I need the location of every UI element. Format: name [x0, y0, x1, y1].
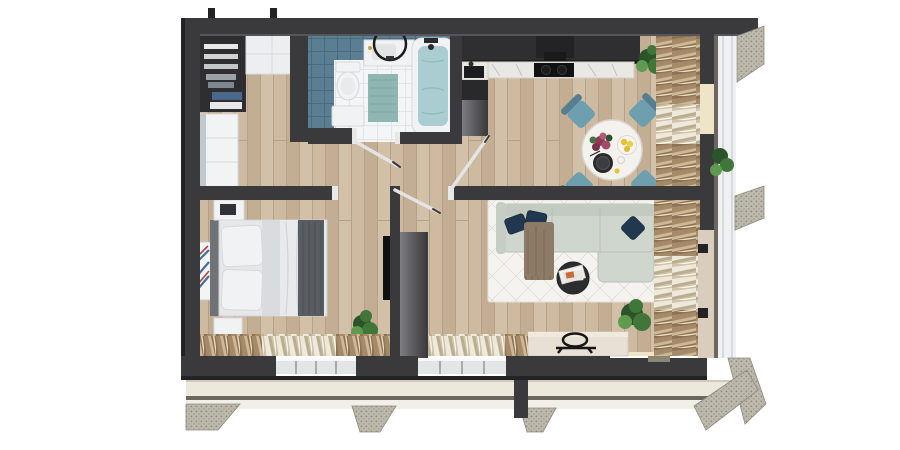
window-handle [698, 308, 708, 318]
living-curtain-cream [654, 256, 700, 310]
glass-frame [418, 358, 506, 361]
partition-cabinet [400, 232, 428, 360]
wardrobe-shelf [204, 44, 238, 49]
appliance-front [462, 100, 488, 136]
window-frame [714, 36, 718, 358]
floor-plan-canvas [0, 0, 900, 450]
door-frame [395, 132, 400, 144]
sofa-back-cushions [502, 204, 654, 216]
small-cup [618, 157, 625, 164]
bathroom-bottom-wall [308, 128, 352, 144]
balcony-floor-edge [186, 380, 732, 382]
glass-line [731, 36, 733, 358]
burner [542, 66, 551, 75]
floor-plan-render [0, 0, 900, 450]
kitchen-curtain-cream [656, 104, 704, 144]
glass-facade [718, 36, 736, 358]
wall-post [514, 356, 528, 418]
nightstand [214, 318, 242, 336]
toilet-tank [336, 62, 360, 72]
kitchen-curtain-brown [656, 144, 704, 186]
bedroom-right-wall [390, 186, 400, 360]
bedroom-curtain-brown [200, 334, 262, 356]
glass-line [722, 36, 724, 358]
lemon [621, 139, 627, 145]
sink-faucet [469, 62, 474, 67]
lemon [624, 146, 630, 152]
sink-basin [464, 66, 484, 78]
living-curtain-cream [428, 334, 505, 356]
entry-bathroom-wall [290, 34, 308, 142]
tub-drain [428, 44, 434, 50]
bathroom-bottom-wall [400, 132, 462, 144]
balcony-railing [186, 396, 734, 400]
balcony-outer-strip [186, 400, 734, 409]
wall-stub [208, 8, 215, 18]
bathroom [308, 28, 454, 142]
right-wall [700, 134, 714, 230]
bedroom-curtain-cream [262, 334, 336, 356]
burner [558, 66, 567, 75]
wall-notch [648, 356, 670, 362]
pillow [221, 269, 262, 310]
left-wall-outer [181, 18, 185, 378]
living-curtain-brown [505, 334, 528, 356]
plate-cup [597, 157, 610, 170]
cooktop [534, 63, 574, 77]
storage-bench [332, 106, 364, 126]
right-wall [700, 34, 714, 84]
window-handle [698, 244, 708, 253]
wardrobe-shelf [204, 64, 238, 69]
folded-clothes [206, 74, 236, 80]
concrete-support [352, 406, 396, 432]
kitchen-curtain-brown [656, 34, 704, 104]
wall-tv [383, 236, 390, 300]
bathroom-kitchen-wall [450, 34, 462, 142]
pillow [221, 225, 263, 267]
wardrobe-shelf [204, 54, 238, 59]
top-wall [200, 18, 758, 36]
door-frame [332, 186, 338, 200]
nightstand-tray [220, 204, 236, 215]
cut-wall-section [737, 26, 764, 82]
white-clothes [210, 102, 242, 109]
concrete-support [186, 404, 240, 430]
lemon-slice [615, 169, 620, 174]
headboard [210, 220, 219, 316]
folded-clothes [208, 82, 234, 88]
bath-mat [368, 74, 398, 122]
blue-clothes [212, 92, 242, 100]
kitchen-living-wall [448, 186, 705, 200]
lit-window-reveal [700, 84, 714, 134]
dark-foot-throw [298, 220, 324, 316]
soap-dish [368, 46, 372, 50]
living-curtain-brown [654, 200, 700, 256]
living-curtain-brown [654, 310, 700, 356]
wall-stub [270, 8, 277, 18]
bottom-wall-outer [181, 376, 707, 380]
top-wall-edge [200, 34, 758, 36]
toilet-seat [341, 77, 355, 95]
bedroom-curtain-brown [336, 334, 390, 356]
duvet-fold-band [262, 220, 280, 316]
balcony-floor [186, 380, 732, 398]
cut-wall-section [735, 186, 764, 230]
glass-frame [276, 358, 356, 361]
sofa-armrest [496, 202, 506, 254]
tub-faucet [424, 38, 438, 43]
basin-faucet [386, 56, 394, 60]
bedroom-top-wall [200, 186, 332, 200]
